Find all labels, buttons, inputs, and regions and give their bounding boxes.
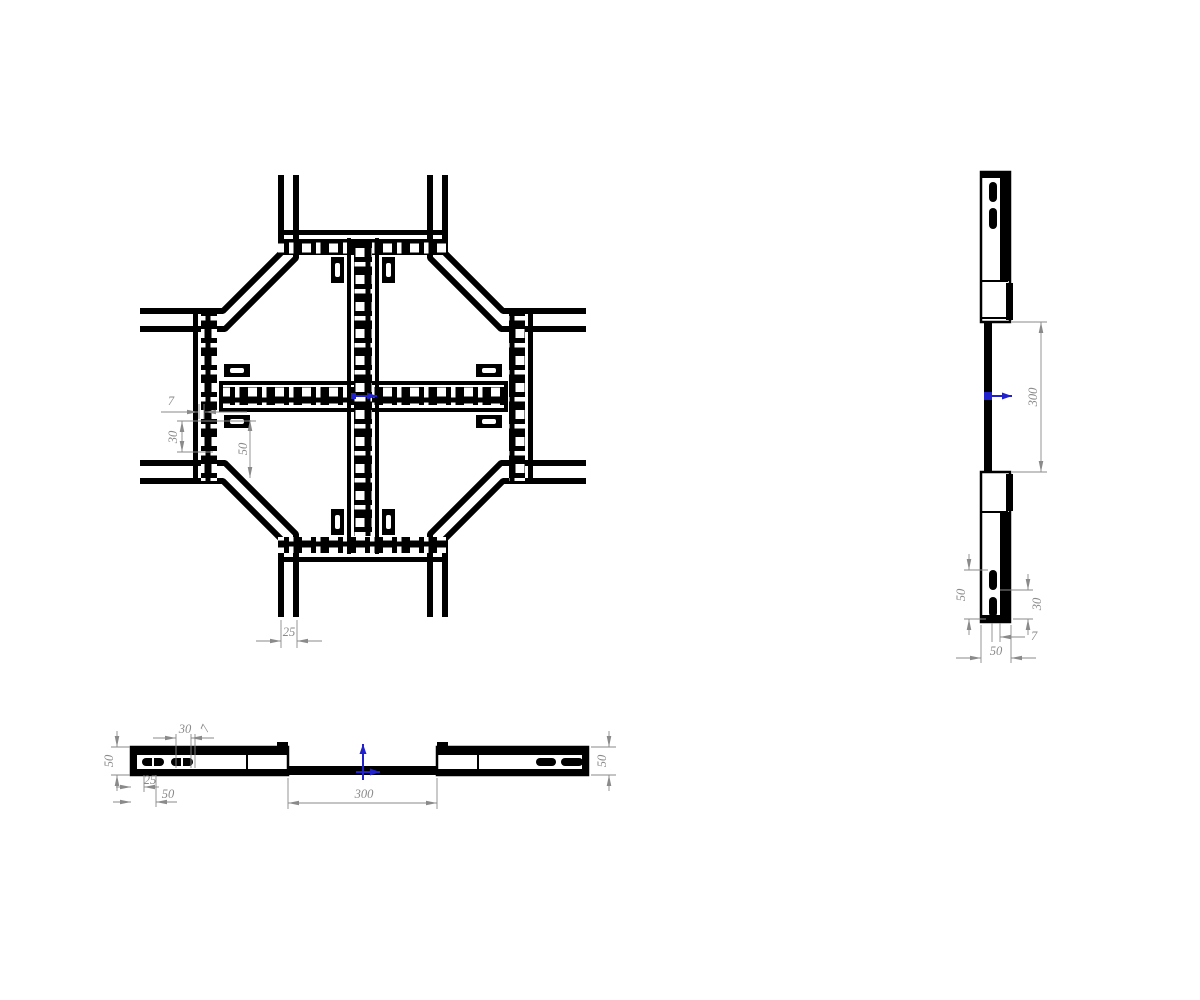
plan-view: 7 30 50 25 xyxy=(140,175,586,648)
dim-front-50-second: 50 xyxy=(162,787,175,801)
dim-front-50-right: 50 xyxy=(595,754,609,767)
dim-side-300: 300 xyxy=(1026,387,1040,408)
dim-side-50-left: 50 xyxy=(954,588,968,601)
dim-front-50-left: 50 xyxy=(102,754,116,767)
side-view: 300 50 30 7 50 xyxy=(954,171,1047,663)
dim-plan-30: 30 xyxy=(166,430,180,444)
drawing-sheet: 7 30 50 25 xyxy=(0,0,1200,1000)
dim-side-50-bottom: 50 xyxy=(990,644,1003,658)
dim-side-30: 30 xyxy=(1030,597,1044,611)
dim-front-300: 300 xyxy=(354,787,375,801)
dim-plan-25: 25 xyxy=(283,625,296,639)
dim-plan-50: 50 xyxy=(236,442,250,455)
dim-plan-7: 7 xyxy=(168,394,175,408)
engineering-drawing-canvas: 7 30 50 25 xyxy=(0,0,1200,1000)
dim-side-7: 7 xyxy=(1031,629,1038,643)
origin-arrow-icon xyxy=(984,392,1012,400)
dim-front-7: 7 xyxy=(197,722,213,734)
front-profile xyxy=(131,742,588,775)
front-view: 50 30 7 25 50 300 50 xyxy=(102,722,616,809)
dim-front-30: 30 xyxy=(178,722,192,736)
dim-front-25: 25 xyxy=(144,773,157,787)
